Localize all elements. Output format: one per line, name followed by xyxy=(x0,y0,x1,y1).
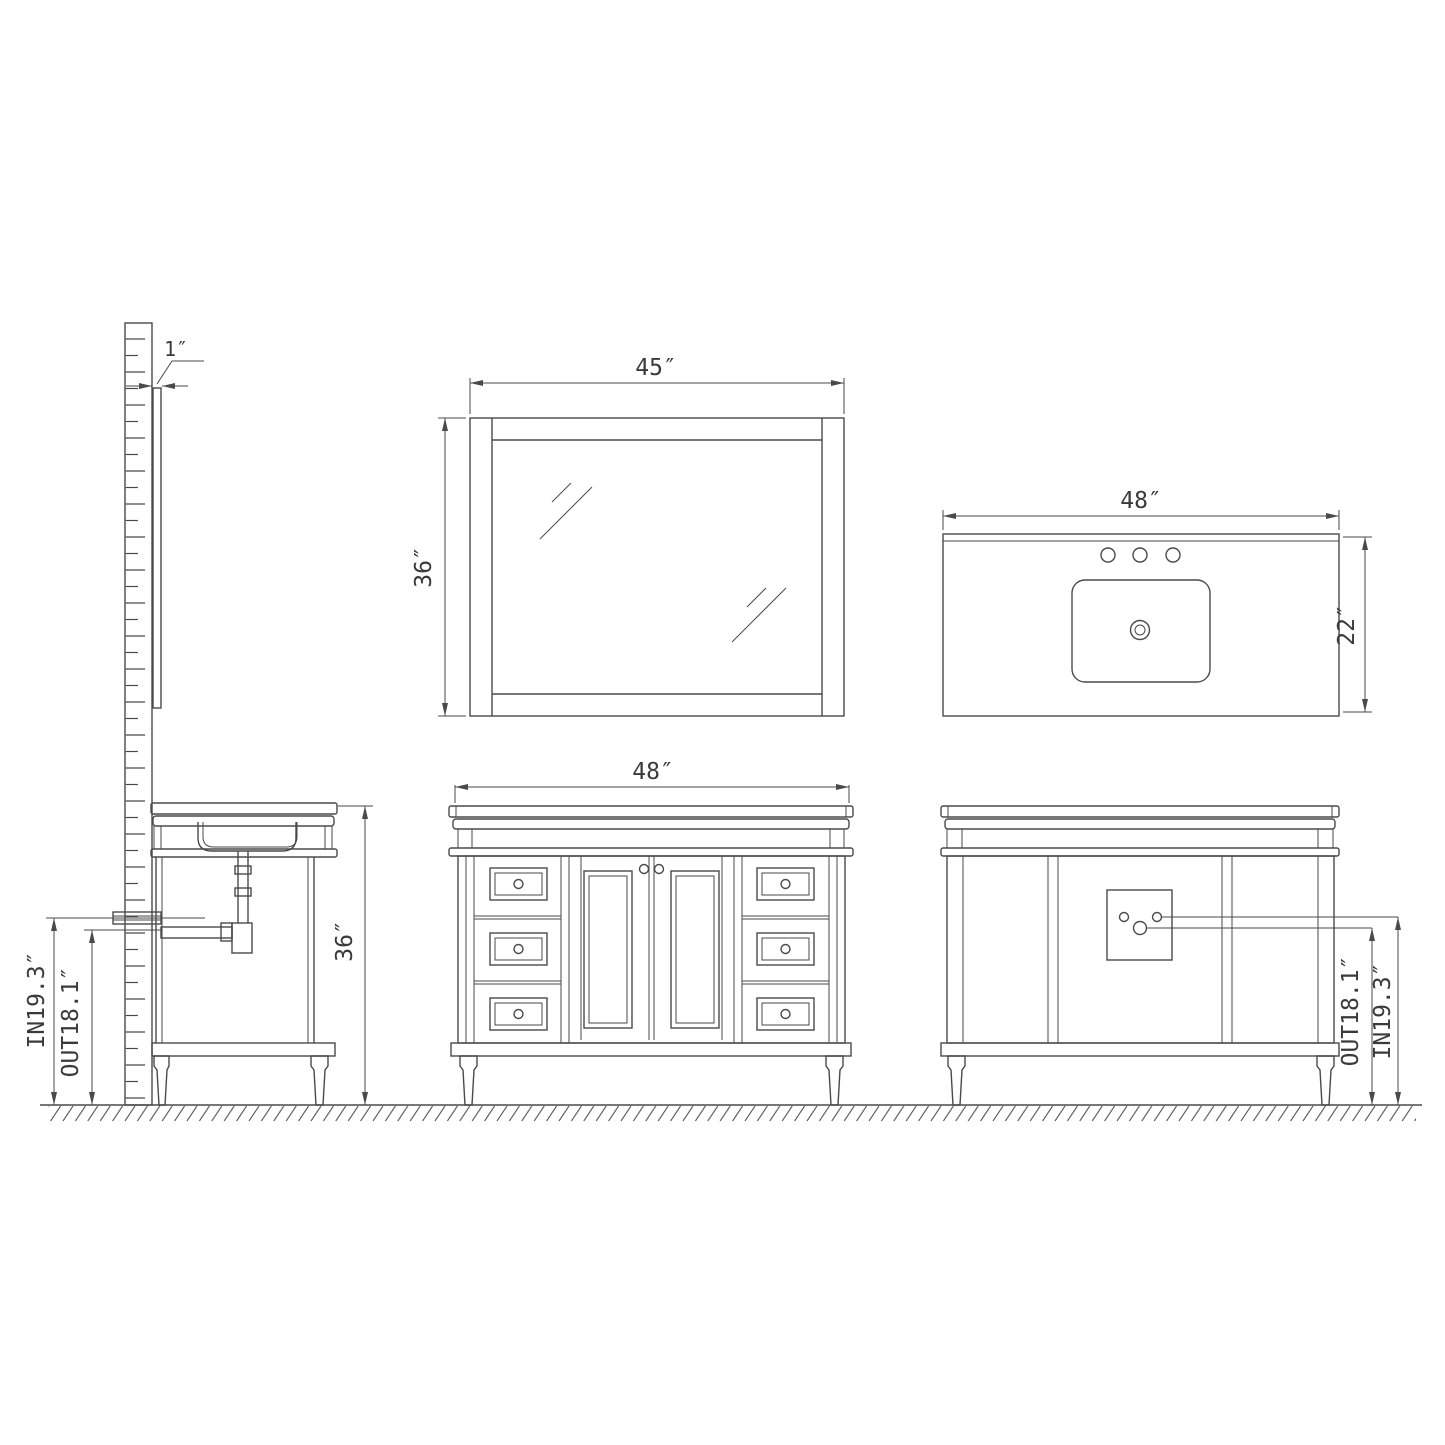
back-drain-out-label: OUT18.1″ xyxy=(1338,956,1364,1067)
back-right-leg xyxy=(1317,1056,1334,1105)
back-stiles xyxy=(963,856,1318,1043)
drain-hole xyxy=(1134,922,1147,935)
drawer-left-1[interactable] xyxy=(490,868,547,900)
mirror-front-view: 45″ 36″ xyxy=(411,355,844,716)
drain-hole xyxy=(1131,621,1150,640)
side-back-leg xyxy=(154,1056,169,1105)
dim-side-drain-in: IN19.3″ xyxy=(24,918,205,1105)
front-right-leg xyxy=(826,1056,843,1105)
front-left-leg xyxy=(460,1056,477,1105)
drawer-knob[interactable] xyxy=(514,1010,523,1019)
back-left-leg xyxy=(948,1056,965,1105)
ground-line xyxy=(40,1105,1422,1123)
vanity-back-view: OUT18.1″ IN19.3″ xyxy=(941,806,1398,1105)
ground-hatching xyxy=(48,1106,1416,1123)
door-knob[interactable] xyxy=(640,865,649,874)
drain-hole-inner xyxy=(1135,625,1145,635)
back-panel-outline xyxy=(947,856,1334,1043)
drawer-knob[interactable] xyxy=(781,1010,790,1019)
mirror-frame xyxy=(470,418,844,716)
drawer-right-2[interactable] xyxy=(757,933,814,965)
supply-hole xyxy=(1153,913,1162,922)
drawer-left-3[interactable] xyxy=(490,998,547,1030)
dim-side-height: 36″ xyxy=(332,806,373,1105)
dim-mirror-width: 45″ xyxy=(470,355,844,414)
door-left[interactable] xyxy=(584,865,649,1029)
drawer-right-3[interactable] xyxy=(757,998,814,1030)
mirror-height-label: 36″ xyxy=(411,546,437,588)
wall-ruler xyxy=(125,323,152,1105)
door-right[interactable] xyxy=(655,865,720,1029)
p-trap xyxy=(232,923,252,953)
mirror-thickness-label: 1″ xyxy=(164,337,188,361)
drawer-knob[interactable] xyxy=(514,945,523,954)
countertop-depth-label: 22″ xyxy=(1334,604,1360,646)
plumbing-access-panel xyxy=(1107,890,1172,960)
countertop-top-view: 48″ 22″ xyxy=(943,488,1372,716)
countertop-width-label: 48″ xyxy=(1120,488,1162,514)
supply-hole xyxy=(1120,913,1129,922)
mirror-side-profile xyxy=(153,388,161,708)
dim-back-drain-out: OUT18.1″ xyxy=(1147,928,1372,1105)
vanity-side-cabinet xyxy=(151,803,337,1105)
faucet-hole xyxy=(1133,548,1147,562)
dim-vanity-width: 48″ xyxy=(455,759,849,803)
glass-reflection-marks xyxy=(540,483,786,642)
vanity-technical-drawing: 1″ xyxy=(0,0,1445,1445)
front-face-frame xyxy=(458,856,845,1043)
drawer-right-1[interactable] xyxy=(757,868,814,900)
drawer-knob[interactable] xyxy=(781,880,790,889)
faucet-hole xyxy=(1101,548,1115,562)
side-height-label: 36″ xyxy=(332,920,358,962)
technical-drawing-page: 1″ xyxy=(0,0,1445,1445)
drawer-knob[interactable] xyxy=(514,880,523,889)
vanity-width-label: 48″ xyxy=(632,759,674,785)
dim-mirror-height: 36″ xyxy=(411,418,466,716)
side-drain-out-label: OUT18.1″ xyxy=(58,967,84,1078)
drawer-left-2[interactable] xyxy=(490,933,547,965)
side-drain-in-label: IN19.3″ xyxy=(24,952,50,1049)
side-section-view: 1″ xyxy=(24,323,373,1105)
drawer-knob[interactable] xyxy=(781,945,790,954)
mirror-width-label: 45″ xyxy=(635,355,677,381)
side-front-leg xyxy=(311,1056,328,1105)
dim-countertop-width: 48″ xyxy=(943,488,1339,530)
sink-basin xyxy=(1072,580,1210,682)
drawer-rails xyxy=(474,916,829,984)
door-knob[interactable] xyxy=(655,865,664,874)
vanity-front-view: 48″ xyxy=(449,759,853,1105)
back-drain-in-label: IN19.3″ xyxy=(1370,963,1396,1060)
faucet-hole xyxy=(1166,548,1180,562)
